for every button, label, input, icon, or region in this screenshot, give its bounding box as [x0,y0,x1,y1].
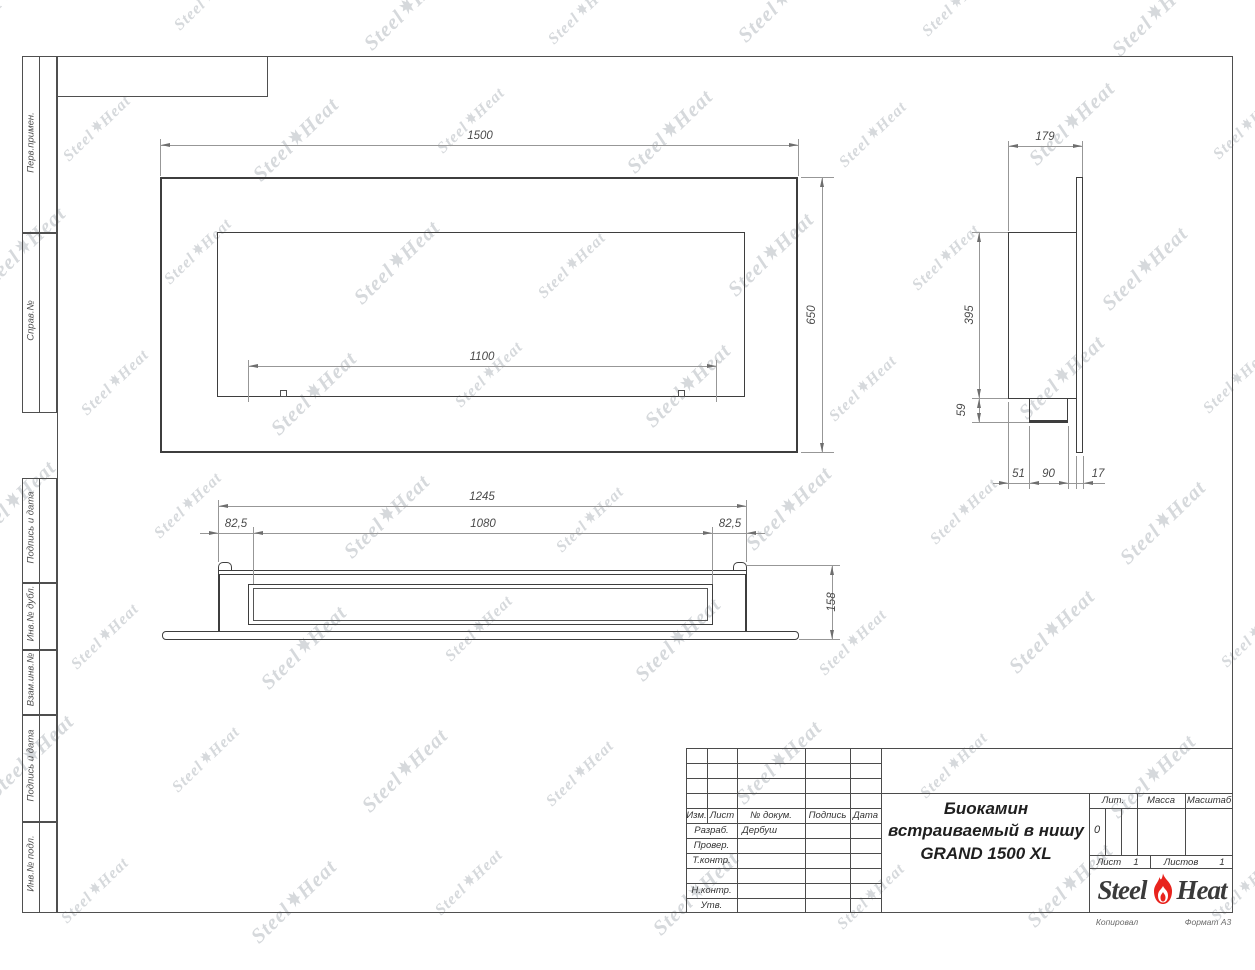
side-view-burner-tray [1029,398,1068,423]
margin-label-inv-podl: Инв.№ подл. [26,804,37,924]
dim-line [1008,146,1083,147]
front-view-mount-tab-right [678,390,685,397]
dim-line [200,533,765,534]
ext-line [799,639,840,640]
dim-front-height: 650 [806,295,818,335]
ext-line [1008,141,1009,231]
dim-side-depth: 179 [1005,131,1085,143]
dim-offset-left: 82,5 [215,518,257,530]
dim-opening-width: 1080 [433,518,533,530]
ext-line [801,452,834,453]
lit-value: 0 [1089,824,1105,836]
dim-line [160,145,799,146]
dim-bottom-depth: 158 [826,582,838,622]
dim-offset-90: 90 [1028,468,1069,480]
dim-arrow [219,504,228,508]
margin-divider [39,650,40,715]
dim-arrow [254,531,263,535]
top-left-stamp-box [57,56,268,97]
lit-label: Лит. [1089,795,1137,806]
staff-label-nkontr: Н.контр. [686,885,737,896]
bottom-view-side-left [218,574,220,632]
dim-arrow [161,143,170,147]
logo-heat-text: Heat [1177,875,1227,906]
side-view-body [1008,232,1077,399]
dim-arrow [820,178,824,187]
title-block-line [686,883,881,884]
title-block-line [737,748,738,913]
sheets-label: Листов [1156,857,1206,868]
margin-label-perv-primen: Перв.примен. [26,58,37,228]
title-block-line [686,838,881,839]
dim-body-width: 1245 [432,491,532,503]
dim-arrow [977,389,981,398]
title-block-line [1089,855,1233,856]
dim-line [822,177,823,453]
dim-line [248,366,717,367]
title-block-line [1089,793,1090,913]
product-name-line-1: Биокамин [883,799,1089,819]
title-block-line [686,763,881,764]
dim-arrow [789,143,798,147]
dim-arrow [1073,144,1082,148]
title-block-line [1105,808,1106,855]
col-header-data: Дата [850,810,881,821]
dim-arrow [209,531,218,535]
staff-label-razrab: Разраб. [686,825,737,836]
margin-divider [39,583,40,650]
dim-arrow [977,413,981,422]
dim-tray-height: 59 [956,390,968,430]
dim-arrow [830,566,834,575]
dim-line [218,506,747,507]
title-block-line [686,868,881,869]
staff-name-razrab: Дербуш [742,825,805,836]
col-header-list: Лист [707,810,737,821]
bottom-view-back-band [218,570,747,575]
side-view-faceplate [1076,177,1083,453]
col-header-ndocum: № докум. [737,810,805,821]
dim-arrow [747,531,756,535]
dim-arrow [820,443,824,452]
logo-steel-text: Steel [1098,875,1147,906]
ext-line [253,527,254,584]
mass-label: Масса [1137,795,1185,806]
dim-arrow [977,233,981,242]
title-block-line [805,748,806,913]
dim-arrow [977,399,981,408]
title-block-line [686,748,1233,749]
ext-line [1076,456,1077,489]
product-name-line-3: GRAND 1500 XL [883,844,1089,864]
dim-arrow [1059,481,1068,485]
dim-arrow [999,481,1008,485]
ext-line [801,177,834,178]
dim-arrow [249,364,258,368]
title-block-line [686,778,881,779]
steelheat-logo: Steel Heat [1093,869,1231,911]
title-block-line [686,823,881,824]
dim-arrow [1030,481,1039,485]
margin-divider [39,56,40,233]
ext-line [712,527,713,584]
margin-divider [39,822,40,913]
ext-line [972,422,1029,423]
dim-offset-17: 17 [1078,468,1118,480]
title-block-line [1089,808,1233,809]
bottom-view-hook-right [733,562,747,571]
dim-offset-right: 82,5 [709,518,751,530]
staff-label-utv: Утв. [686,900,737,911]
dim-body-height: 395 [964,295,976,335]
bottom-view-opening-inner [253,588,708,621]
dim-arrow [1084,481,1093,485]
ext-line [747,565,840,566]
title-block-line [1150,855,1151,868]
col-header-podpis: Подпись [805,810,850,821]
flame-icon [1151,873,1175,905]
title-block-line [850,748,851,913]
staff-label-prover: Провер. [686,840,737,851]
title-block-line [686,898,881,899]
drawing-sheet: SteelHeatSteelHeatSteelHeatSteelHeatStee… [0,0,1255,970]
title-block-line [686,853,881,854]
sheet-label: Лист [1092,857,1126,868]
dim-arrow [703,531,712,535]
ext-line [218,500,219,562]
sheet-value: 1 [1128,857,1144,868]
dim-arrow [830,630,834,639]
drawing-layer: Перв.примен. Справ.№ Подпись и дата Инв.… [0,0,1255,970]
footer-format: Формат А3 [1168,917,1248,927]
product-name-line-2: встраиваемый в нишу [883,821,1089,841]
sheets-value: 1 [1214,857,1230,868]
scale-label: Масштаб [1185,795,1233,806]
margin-divider [39,233,40,413]
dim-burner-width: 1100 [432,351,532,363]
col-header-izm: Изм. [686,810,707,821]
bottom-view-faceplate-plate [162,631,799,640]
dim-arrow [707,364,716,368]
front-view-niche-outline [217,232,745,397]
front-view-mount-tab-left [280,390,287,397]
title-block-line [1121,808,1122,855]
dim-arrow [1009,144,1018,148]
margin-divider [39,478,40,583]
dim-arrow [737,504,746,508]
bottom-view-hook-left [218,562,232,571]
dim-front-width: 1500 [430,130,530,142]
title-block-line [686,808,881,809]
margin-divider [39,715,40,822]
margin-label-sprav-no: Справ.№ [26,236,37,406]
staff-label-tkontr: Т.контр. [686,855,737,866]
title-block-line [686,793,1233,794]
footer-copied: Копировал [1070,917,1164,927]
bottom-view-side-right [745,574,747,632]
